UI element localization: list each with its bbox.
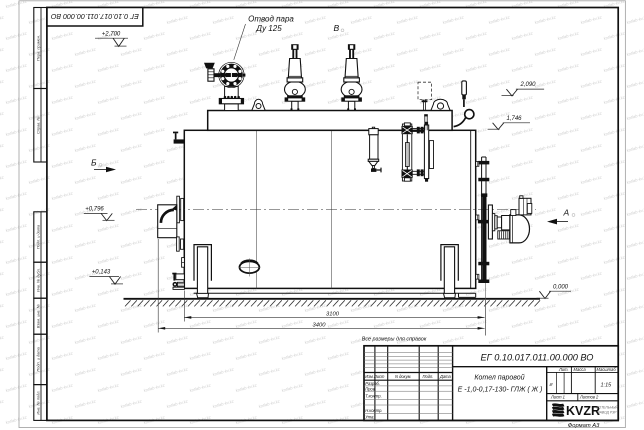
svg-text:kotlab-kv.kz: kotlab-kv.kz: [442, 14, 465, 25]
svg-text:kotlab-kv.kz: kotlab-kv.kz: [143, 158, 166, 169]
svg-text:kotlab-kv.kz: kotlab-kv.kz: [373, 62, 396, 73]
svg-text:kotlab-kv.kz: kotlab-kv.kz: [603, 126, 626, 137]
svg-text:ЕГ 0.10.017.011.00.000 ВО: ЕГ 0.10.017.011.00.000 ВО: [481, 353, 594, 363]
svg-text:kotlab-kv.kz: kotlab-kv.kz: [419, 30, 442, 41]
svg-text:kotlab-kv.kz: kotlab-kv.kz: [350, 302, 373, 313]
svg-text:kotlab-kv.kz: kotlab-kv.kz: [143, 30, 166, 41]
svg-text:kotlab-kv.kz: kotlab-kv.kz: [97, 94, 120, 105]
svg-text:kotlab-kv.kz: kotlab-kv.kz: [511, 286, 534, 297]
svg-text:kotlab-kv.kz: kotlab-kv.kz: [603, 62, 626, 73]
svg-text:Лист 1: Лист 1: [550, 395, 565, 400]
svg-text:kotlab-kv.kz: kotlab-kv.kz: [5, 62, 28, 73]
svg-text:kotlab-kv.kz: kotlab-kv.kz: [534, 14, 557, 25]
svg-text:kotlab-kv.kz: kotlab-kv.kz: [51, 382, 74, 393]
svg-text:kotlab-kv.kz: kotlab-kv.kz: [534, 174, 557, 185]
svg-text:kotlab-kv.kz: kotlab-kv.kz: [120, 334, 143, 345]
svg-text:kotlab-kv.kz: kotlab-kv.kz: [396, 78, 419, 89]
svg-text:kotlab-kv.kz: kotlab-kv.kz: [557, 126, 580, 137]
svg-text:kotlab-kv.kz: kotlab-kv.kz: [0, 206, 5, 217]
svg-text:kotlab-kv.kz: kotlab-kv.kz: [97, 222, 120, 233]
svg-text:kotlab-kv.kz: kotlab-kv.kz: [373, 318, 396, 329]
svg-text:kotlab-kv.kz: kotlab-kv.kz: [5, 350, 28, 361]
svg-text:kotlab-kv.kz: kotlab-kv.kz: [189, 94, 212, 105]
svg-text:kotlab-kv.kz: kotlab-kv.kz: [603, 30, 626, 41]
svg-text:kotlab-kv.kz: kotlab-kv.kz: [120, 78, 143, 89]
svg-text:kotlab-kv.kz: kotlab-kv.kz: [603, 94, 626, 105]
svg-text:kotlab-kv.kz: kotlab-kv.kz: [304, 398, 327, 409]
svg-text:kotlab-kv.kz: kotlab-kv.kz: [488, 174, 511, 185]
svg-text:kotlab-kv.kz: kotlab-kv.kz: [304, 334, 327, 345]
svg-text:kotlab-kv.kz: kotlab-kv.kz: [120, 270, 143, 281]
svg-text:kotlab-kv.kz: kotlab-kv.kz: [166, 46, 189, 57]
svg-text:kotlab-kv.kz: kotlab-kv.kz: [580, 14, 603, 25]
svg-text:kotlab-kv.kz: kotlab-kv.kz: [304, 302, 327, 313]
svg-text:1:15: 1:15: [601, 383, 613, 389]
svg-text:kotlab-kv.kz: kotlab-kv.kz: [74, 142, 97, 153]
svg-text:kotlab-kv.kz: kotlab-kv.kz: [626, 366, 644, 377]
svg-text:kotlab-kv.kz: kotlab-kv.kz: [0, 238, 5, 249]
svg-text:kotlab-kv.kz: kotlab-kv.kz: [626, 110, 644, 121]
svg-text:Дата: Дата: [439, 374, 452, 379]
svg-text:Листов 2: Листов 2: [579, 395, 599, 400]
svg-text:kotlab-kv.kz: kotlab-kv.kz: [74, 302, 97, 313]
svg-text:kotlab-kv.kz: kotlab-kv.kz: [580, 238, 603, 249]
svg-text:Взам. инв. №: Взам. инв. №: [35, 303, 40, 328]
svg-text:kotlab-kv.kz: kotlab-kv.kz: [5, 286, 28, 297]
svg-text:kotlab-kv.kz: kotlab-kv.kz: [465, 62, 488, 73]
svg-text:Подп. и дата: Подп. и дата: [35, 224, 40, 249]
svg-text:ЕГ 0.10.017.011.00.000 ВО: ЕГ 0.10.017.011.00.000 ВО: [50, 12, 139, 19]
svg-text:kotlab-kv.kz: kotlab-kv.kz: [258, 46, 281, 57]
svg-text:kotlab-kv.kz: kotlab-kv.kz: [0, 334, 5, 345]
svg-text:1,746: 1,746: [506, 116, 522, 122]
svg-text:kotlab-kv.kz: kotlab-kv.kz: [626, 238, 644, 249]
svg-text:kotlab-kv.kz: kotlab-kv.kz: [580, 46, 603, 57]
svg-text:КОТЕЛЬНЫЙ: КОТЕЛЬНЫЙ: [597, 406, 619, 410]
svg-text:kotlab-kv.kz: kotlab-kv.kz: [419, 62, 442, 73]
svg-text:kotlab-kv.kz: kotlab-kv.kz: [5, 318, 28, 329]
svg-text:kotlab-kv.kz: kotlab-kv.kz: [189, 350, 212, 361]
svg-text:kotlab-kv.kz: kotlab-kv.kz: [626, 174, 644, 185]
svg-text:kotlab-kv.kz: kotlab-kv.kz: [51, 126, 74, 137]
svg-text:Инв. № подл.: Инв. № подл.: [35, 390, 40, 414]
svg-text:kotlab-kv.kz: kotlab-kv.kz: [97, 350, 120, 361]
svg-text:kotlab-kv.kz: kotlab-kv.kz: [465, 94, 488, 105]
svg-text:kotlab-kv.kz: kotlab-kv.kz: [97, 286, 120, 297]
svg-text:kotlab-kv.kz: kotlab-kv.kz: [97, 190, 120, 201]
svg-text:kotlab-kv.kz: kotlab-kv.kz: [327, 318, 350, 329]
svg-text:kotlab-kv.kz: kotlab-kv.kz: [580, 334, 603, 345]
svg-text:+2,700: +2,700: [102, 31, 121, 37]
svg-text:kotlab-kv.kz: kotlab-kv.kz: [580, 270, 603, 281]
svg-text:kotlab-kv.kz: kotlab-kv.kz: [51, 30, 74, 41]
svg-text:kotlab-kv.kz: kotlab-kv.kz: [120, 398, 143, 409]
svg-text:kotlab-kv.kz: kotlab-kv.kz: [626, 334, 644, 345]
svg-text:kotlab-kv.kz: kotlab-kv.kz: [281, 382, 304, 393]
svg-text:kotlab-kv.kz: kotlab-kv.kz: [51, 94, 74, 105]
svg-text:kotlab-kv.kz: kotlab-kv.kz: [0, 46, 5, 57]
svg-text:Справ. №: Справ. №: [35, 116, 40, 134]
svg-text:kotlab-kv.kz: kotlab-kv.kz: [442, 46, 465, 57]
svg-text:kotlab-kv.kz: kotlab-kv.kz: [5, 94, 28, 105]
svg-text:kotlab-kv.kz: kotlab-kv.kz: [5, 382, 28, 393]
svg-text:kotlab-kv.kz: kotlab-kv.kz: [0, 142, 5, 153]
svg-text:Масса: Масса: [574, 367, 587, 372]
svg-text:kotlab-kv.kz: kotlab-kv.kz: [557, 94, 580, 105]
svg-text:Е -1,0-0,17-130- ГЛЖ ( Ж ): Е -1,0-0,17-130- ГЛЖ ( Ж ): [458, 387, 543, 394]
svg-text:kotlab-kv.kz: kotlab-kv.kz: [143, 254, 166, 265]
svg-text:kotlab-kv.kz: kotlab-kv.kz: [511, 254, 534, 265]
svg-text:kotlab-kv.kz: kotlab-kv.kz: [327, 382, 350, 393]
svg-text:kotlab-kv.kz: kotlab-kv.kz: [534, 142, 557, 153]
svg-text:Подп.: Подп.: [423, 374, 434, 379]
svg-text:kotlab-kv.kz: kotlab-kv.kz: [626, 46, 644, 57]
svg-text:kotlab-kv.kz: kotlab-kv.kz: [534, 110, 557, 121]
svg-text:kotlab-kv.kz: kotlab-kv.kz: [281, 350, 304, 361]
svg-text:kotlab-kv.kz: kotlab-kv.kz: [419, 318, 442, 329]
svg-text:kotlab-kv.kz: kotlab-kv.kz: [235, 318, 258, 329]
svg-text:kotlab-kv.kz: kotlab-kv.kz: [442, 334, 465, 345]
svg-text:kotlab-kv.kz: kotlab-kv.kz: [534, 302, 557, 313]
svg-text:kotlab-kv.kz: kotlab-kv.kz: [373, 94, 396, 105]
svg-text:kotlab-kv.kz: kotlab-kv.kz: [580, 302, 603, 313]
svg-text:kotlab-kv.kz: kotlab-kv.kz: [235, 30, 258, 41]
svg-text:kotlab-kv.kz: kotlab-kv.kz: [534, 334, 557, 345]
svg-text:+0,143: +0,143: [92, 270, 111, 276]
svg-text:kotlab-kv.kz: kotlab-kv.kz: [0, 14, 5, 25]
svg-text:kotlab-kv.kz: kotlab-kv.kz: [51, 158, 74, 169]
svg-text:KVZR: KVZR: [566, 403, 600, 418]
svg-text:kotlab-kv.kz: kotlab-kv.kz: [166, 110, 189, 121]
svg-text:kotlab-kv.kz: kotlab-kv.kz: [603, 190, 626, 201]
svg-text:kotlab-kv.kz: kotlab-kv.kz: [626, 142, 644, 153]
svg-text:kotlab-kv.kz: kotlab-kv.kz: [488, 14, 511, 25]
svg-text:kotlab-kv.kz: kotlab-kv.kz: [97, 318, 120, 329]
svg-text:kotlab-kv.kz: kotlab-kv.kz: [0, 174, 5, 185]
svg-text:kotlab-kv.kz: kotlab-kv.kz: [166, 366, 189, 377]
svg-text:+0,796: +0,796: [85, 207, 104, 213]
svg-text:kotlab-kv.kz: kotlab-kv.kz: [534, 46, 557, 57]
svg-text:kotlab-kv.kz: kotlab-kv.kz: [189, 318, 212, 329]
svg-text:kotlab-kv.kz: kotlab-kv.kz: [281, 30, 304, 41]
svg-text:kotlab-kv.kz: kotlab-kv.kz: [5, 0, 28, 9]
svg-text:kotlab-kv.kz: kotlab-kv.kz: [534, 270, 557, 281]
svg-text:kotlab-kv.kz: kotlab-kv.kz: [51, 350, 74, 361]
svg-text:kotlab-kv.kz: kotlab-kv.kz: [0, 270, 5, 281]
svg-text:kotlab-kv.kz: kotlab-kv.kz: [557, 158, 580, 169]
svg-text:kotlab-kv.kz: kotlab-kv.kz: [0, 302, 5, 313]
svg-text:kotlab-kv.kz: kotlab-kv.kz: [5, 254, 28, 265]
svg-text:kotlab-kv.kz: kotlab-kv.kz: [534, 78, 557, 89]
svg-text:kotlab-kv.kz: kotlab-kv.kz: [258, 398, 281, 409]
svg-text:kotlab-kv.kz: kotlab-kv.kz: [189, 382, 212, 393]
svg-text:kotlab-kv.kz: kotlab-kv.kz: [488, 142, 511, 153]
svg-text:kotlab-kv.kz: kotlab-kv.kz: [97, 254, 120, 265]
svg-text:kotlab-kv.kz: kotlab-kv.kz: [120, 238, 143, 249]
svg-text:kotlab-kv.kz: kotlab-kv.kz: [120, 206, 143, 217]
svg-text:kotlab-kv.kz: kotlab-kv.kz: [557, 62, 580, 73]
svg-text:kotlab-kv.kz: kotlab-kv.kz: [557, 222, 580, 233]
svg-text:kotlab-kv.kz: kotlab-kv.kz: [465, 318, 488, 329]
svg-text:Пров.: Пров.: [365, 386, 376, 391]
svg-text:kotlab-kv.kz: kotlab-kv.kz: [626, 302, 644, 313]
svg-text:0,000: 0,000: [553, 284, 569, 290]
svg-text:kotlab-kv.kz: kotlab-kv.kz: [5, 126, 28, 137]
svg-text:kotlab-kv.kz: kotlab-kv.kz: [396, 14, 419, 25]
svg-text:kotlab-kv.kz: kotlab-kv.kz: [212, 398, 235, 409]
svg-text:kotlab-kv.kz: kotlab-kv.kz: [511, 158, 534, 169]
svg-text:kotlab-kv.kz: kotlab-kv.kz: [534, 238, 557, 249]
svg-text:kotlab-kv.kz: kotlab-kv.kz: [143, 286, 166, 297]
svg-text:kotlab-kv.kz: kotlab-kv.kz: [5, 222, 28, 233]
svg-text:Масштаб: Масштаб: [597, 367, 617, 372]
svg-text:kotlab-kv.kz: kotlab-kv.kz: [120, 110, 143, 121]
svg-text:kotlab-kv.kz: kotlab-kv.kz: [580, 78, 603, 89]
svg-text:kotlab-kv.kz: kotlab-kv.kz: [0, 366, 5, 377]
svg-text:kotlab-kv.kz: kotlab-kv.kz: [626, 206, 644, 217]
svg-text:kotlab-kv.kz: kotlab-kv.kz: [511, 126, 534, 137]
svg-text:Перв. примен.: Перв. примен.: [35, 35, 40, 61]
svg-text:Подп. и дата: Подп. и дата: [35, 346, 40, 371]
svg-text:kotlab-kv.kz: kotlab-kv.kz: [143, 62, 166, 73]
svg-text:kotlab-kv.kz: kotlab-kv.kz: [74, 398, 97, 409]
svg-text:kotlab-kv.kz: kotlab-kv.kz: [350, 14, 373, 25]
svg-text:kotlab-kv.kz: kotlab-kv.kz: [557, 254, 580, 265]
svg-text:Изм Лист: Изм Лист: [365, 374, 385, 379]
svg-text:kotlab-kv.kz: kotlab-kv.kz: [580, 142, 603, 153]
svg-text:kotlab-kv.kz: kotlab-kv.kz: [5, 190, 28, 201]
svg-text:Формат А3: Формат А3: [568, 423, 600, 429]
svg-text:kotlab-kv.kz: kotlab-kv.kz: [304, 14, 327, 25]
svg-text:Б: Б: [91, 158, 97, 168]
svg-text:2,090: 2,090: [519, 82, 536, 88]
svg-text:kotlab-kv.kz: kotlab-kv.kz: [0, 398, 5, 409]
svg-text:kotlab-kv.kz: kotlab-kv.kz: [511, 94, 534, 105]
svg-text:kotlab-kv.kz: kotlab-kv.kz: [74, 238, 97, 249]
svg-text:kotlab-kv.kz: kotlab-kv.kz: [74, 174, 97, 185]
svg-text:kotlab-kv.kz: kotlab-kv.kz: [258, 334, 281, 345]
svg-text:kotlab-kv.kz: kotlab-kv.kz: [511, 62, 534, 73]
svg-text:ЗАВОД РЗР: ЗАВОД РЗР: [598, 410, 618, 414]
svg-text:kotlab-kv.kz: kotlab-kv.kz: [120, 142, 143, 153]
svg-text:kotlab-kv.kz: kotlab-kv.kz: [603, 254, 626, 265]
svg-text:kotlab-kv.kz: kotlab-kv.kz: [5, 158, 28, 169]
svg-text:kotlab-kv.kz: kotlab-kv.kz: [373, 30, 396, 41]
svg-text:kotlab-kv.kz: kotlab-kv.kz: [97, 62, 120, 73]
svg-text:kotlab-kv.kz: kotlab-kv.kz: [120, 366, 143, 377]
svg-text:kotlab-kv.kz: kotlab-kv.kz: [74, 78, 97, 89]
svg-text:kotlab-kv.kz: kotlab-kv.kz: [603, 222, 626, 233]
svg-text:kotlab-kv.kz: kotlab-kv.kz: [74, 366, 97, 377]
svg-text:Т.контр.: Т.контр.: [365, 394, 382, 399]
svg-text:kotlab-kv.kz: kotlab-kv.kz: [212, 366, 235, 377]
svg-text:Разраб.: Разраб.: [365, 381, 380, 386]
svg-text:kotlab-kv.kz: kotlab-kv.kz: [74, 110, 97, 121]
svg-text:Н.контр.: Н.контр.: [365, 408, 382, 413]
svg-text:kotlab-kv.kz: kotlab-kv.kz: [258, 302, 281, 313]
svg-text:kotlab-kv.kz: kotlab-kv.kz: [143, 126, 166, 137]
svg-text:kotlab-kv.kz: kotlab-kv.kz: [166, 78, 189, 89]
svg-text:kotlab-kv.kz: kotlab-kv.kz: [74, 334, 97, 345]
svg-text:kotlab-kv.kz: kotlab-kv.kz: [51, 254, 74, 265]
svg-text:kotlab-kv.kz: kotlab-kv.kz: [120, 174, 143, 185]
svg-text:kotlab-kv.kz: kotlab-kv.kz: [5, 30, 28, 41]
svg-text:3100: 3100: [326, 312, 340, 318]
svg-text:Все размеры для справок: Все размеры для справок: [362, 337, 427, 343]
svg-text:kotlab-kv.kz: kotlab-kv.kz: [557, 30, 580, 41]
svg-text:kotlab-kv.kz: kotlab-kv.kz: [626, 14, 644, 25]
svg-text:kotlab-kv.kz: kotlab-kv.kz: [603, 318, 626, 329]
svg-text:kotlab-kv.kz: kotlab-kv.kz: [143, 382, 166, 393]
svg-text:kotlab-kv.kz: kotlab-kv.kz: [626, 78, 644, 89]
svg-text:kotlab-kv.kz: kotlab-kv.kz: [327, 350, 350, 361]
svg-text:kotlab-kv.kz: kotlab-kv.kz: [166, 398, 189, 409]
svg-text:kotlab-kv.kz: kotlab-kv.kz: [51, 190, 74, 201]
svg-text:kotlab-kv.kz: kotlab-kv.kz: [258, 366, 281, 377]
svg-text:kotlab-kv.kz: kotlab-kv.kz: [51, 222, 74, 233]
svg-text:kotlab-kv.kz: kotlab-kv.kz: [143, 190, 166, 201]
svg-text:kotlab-kv.kz: kotlab-kv.kz: [603, 286, 626, 297]
svg-text:kotlab-kv.kz: kotlab-kv.kz: [626, 270, 644, 281]
svg-text:kotlab-kv.kz: kotlab-kv.kz: [304, 46, 327, 57]
svg-text:kotlab-kv.kz: kotlab-kv.kz: [143, 318, 166, 329]
svg-text:Отвод пара: Отвод пара: [248, 15, 294, 24]
svg-text:kotlab-kv.kz: kotlab-kv.kz: [580, 174, 603, 185]
svg-text:А: А: [563, 208, 570, 218]
svg-text:N докум.: N докум.: [395, 374, 412, 379]
svg-text:kotlab-kv.kz: kotlab-kv.kz: [580, 110, 603, 121]
svg-text:kotlab-kv.kz: kotlab-kv.kz: [534, 206, 557, 217]
svg-text:kotlab-kv.kz: kotlab-kv.kz: [488, 46, 511, 57]
svg-text:kotlab-kv.kz: kotlab-kv.kz: [212, 14, 235, 25]
svg-text:kotlab-kv.kz: kotlab-kv.kz: [488, 78, 511, 89]
svg-text:kotlab-kv.kz: kotlab-kv.kz: [74, 46, 97, 57]
svg-text:kotlab-kv.kz: kotlab-kv.kz: [304, 78, 327, 89]
svg-text:kotlab-kv.kz: kotlab-kv.kz: [143, 94, 166, 105]
svg-text:kotlab-kv.kz: kotlab-kv.kz: [212, 334, 235, 345]
svg-text:kotlab-kv.kz: kotlab-kv.kz: [557, 318, 580, 329]
svg-text:Ду 125: Ду 125: [255, 24, 282, 33]
svg-text:kotlab-kv.kz: kotlab-kv.kz: [396, 302, 419, 313]
svg-text:kotlab-kv.kz: kotlab-kv.kz: [0, 110, 5, 121]
svg-text:kotlab-kv.kz: kotlab-kv.kz: [143, 350, 166, 361]
svg-text:И: И: [550, 382, 553, 387]
svg-text:kotlab-kv.kz: kotlab-kv.kz: [304, 366, 327, 377]
svg-text:kotlab-kv.kz: kotlab-kv.kz: [0, 78, 5, 89]
svg-text:kotlab-kv.kz: kotlab-kv.kz: [235, 382, 258, 393]
svg-text:kotlab-kv.kz: kotlab-kv.kz: [396, 46, 419, 57]
svg-text:Инв. № дубл.: Инв. № дубл.: [35, 268, 40, 292]
svg-text:kotlab-kv.kz: kotlab-kv.kz: [258, 78, 281, 89]
svg-text:kotlab-kv.kz: kotlab-kv.kz: [212, 46, 235, 57]
svg-text:Лит.: Лит.: [558, 367, 569, 372]
svg-text:kotlab-kv.kz: kotlab-kv.kz: [235, 350, 258, 361]
svg-text:kotlab-kv.kz: kotlab-kv.kz: [488, 270, 511, 281]
svg-text:kotlab-kv.kz: kotlab-kv.kz: [580, 206, 603, 217]
svg-text:kotlab-kv.kz: kotlab-kv.kz: [97, 126, 120, 137]
svg-text:kotlab-kv.kz: kotlab-kv.kz: [189, 30, 212, 41]
svg-text:В: В: [334, 23, 340, 33]
svg-text:kotlab-kv.kz: kotlab-kv.kz: [465, 30, 488, 41]
svg-text:kotlab-kv.kz: kotlab-kv.kz: [51, 318, 74, 329]
svg-text:Котел паровой: Котел паровой: [474, 374, 524, 382]
svg-text:Утв.: Утв.: [365, 415, 374, 420]
svg-text:3400: 3400: [313, 323, 327, 329]
svg-text:kotlab-kv.kz: kotlab-kv.kz: [51, 62, 74, 73]
svg-text:kotlab-kv.kz: kotlab-kv.kz: [120, 46, 143, 57]
svg-text:kotlab-kv.kz: kotlab-kv.kz: [5, 414, 28, 425]
svg-text:kotlab-kv.kz: kotlab-kv.kz: [97, 382, 120, 393]
svg-text:kotlab-kv.kz: kotlab-kv.kz: [511, 318, 534, 329]
svg-text:kotlab-kv.kz: kotlab-kv.kz: [166, 14, 189, 25]
svg-text:kotlab-kv.kz: kotlab-kv.kz: [488, 302, 511, 313]
svg-text:kotlab-kv.kz: kotlab-kv.kz: [166, 334, 189, 345]
svg-text:kotlab-kv.kz: kotlab-kv.kz: [488, 238, 511, 249]
svg-text:kotlab-kv.kz: kotlab-kv.kz: [557, 190, 580, 201]
svg-text:kotlab-kv.kz: kotlab-kv.kz: [51, 286, 74, 297]
svg-text:kotlab-kv.kz: kotlab-kv.kz: [281, 318, 304, 329]
svg-text:kotlab-kv.kz: kotlab-kv.kz: [488, 334, 511, 345]
svg-text:kotlab-kv.kz: kotlab-kv.kz: [626, 398, 644, 409]
svg-text:kotlab-kv.kz: kotlab-kv.kz: [603, 158, 626, 169]
svg-text:kotlab-kv.kz: kotlab-kv.kz: [511, 30, 534, 41]
